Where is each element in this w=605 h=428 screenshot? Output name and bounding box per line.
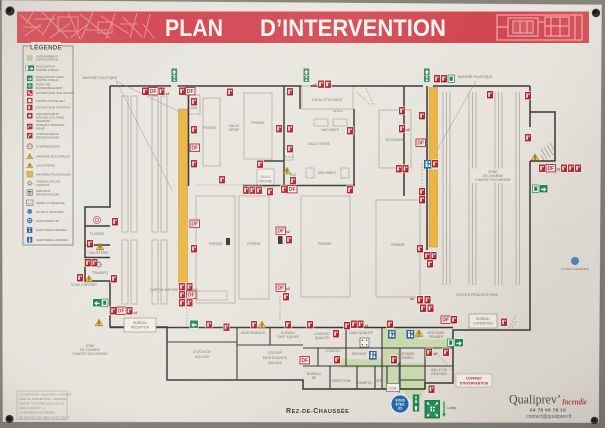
svg-text:GRISE: GRISE <box>229 128 239 132</box>
svg-text:A 20M: A 20M <box>447 406 456 410</box>
svg-text:ARRÊT D’URGENCE: ARRÊT D’URGENCE <box>36 200 65 205</box>
svg-text:ARCHIVE: ARCHIVE <box>352 352 367 356</box>
svg-text:D’INTERVENTION: D’INTERVENTION <box>460 382 489 386</box>
svg-text:PRESSE: PRESSE <box>251 121 265 125</box>
svg-text:COFFRET: COFFRET <box>466 377 483 381</box>
svg-text:PRESSE: PRESSE <box>209 242 223 246</box>
svg-text:MAINTENANCE: MAINTENANCE <box>263 356 287 360</box>
svg-text:MATIERE PLASTIQUE: MATIERE PLASTIQUE <box>458 75 492 79</box>
svg-text:MOULES: MOULES <box>268 361 282 365</box>
svg-text:ICI: ICI <box>398 407 402 411</box>
svg-text:BUREAU: BUREAU <box>133 321 147 325</box>
svg-text:SANITAIRES HOMMES: SANITAIRES HOMMES <box>36 238 68 242</box>
svg-text:LÉGENDE: LÉGENDE <box>30 43 62 52</box>
svg-text:GÉR.: GÉR. <box>375 378 383 383</box>
svg-text:STOCK: STOCK <box>333 109 343 113</box>
svg-text:DÉSENFUMAGE: DÉSENFUMAGE <box>36 134 59 139</box>
svg-text:TRANSFO: TRANSFO <box>92 271 108 275</box>
svg-text:BUREAU: BUREAU <box>476 317 490 321</box>
svg-text:ELEC: ELEC <box>284 155 293 159</box>
svg-text:NF X08-070 & ISO 3864-1 & ISO: NF X08-070 & ISO 3864-1 & ISO 7010-2 <box>19 415 70 419</box>
svg-text:PRESSE: PRESSE <box>318 242 332 246</box>
svg-text:CHAUFFERIE: CHAUFFERIE <box>87 251 108 255</box>
svg-text:CHARIOT ELEVATEUR: CHARIOT ELEVATEUR <box>72 352 108 356</box>
svg-text:ARMÉ: ARMÉ <box>36 125 45 130</box>
svg-text:Qualiprev’: Qualiprev’ <box>509 392 561 407</box>
svg-text:STOCKS PRODUITS FINIS: STOCKS PRODUITS FINIS <box>456 293 498 297</box>
svg-text:FLUIDES: FLUIDES <box>90 232 104 236</box>
svg-text:TENSION: TENSION <box>36 183 49 187</box>
svg-text:MAINTENANCE: MAINTENANCE <box>241 331 265 335</box>
svg-text:SORTIE FINALE: SORTIE FINALE <box>36 68 58 72</box>
svg-text:REZ-DE-CHAUSSÉE: REZ-DE-CHAUSSÉE <box>286 407 349 415</box>
svg-text:STOCKAGE: STOCKAGE <box>193 350 211 354</box>
svg-text:contact@qualiprev.fr: contact@qualiprev.fr <box>526 414 572 420</box>
svg-text:SANITAIRES FEMMES: SANITAIRES FEMMES <box>36 228 67 232</box>
svg-text:CONCEPTEUR : QUALIPREV INCENDI: CONCEPTEUR : QUALIPREV INCENDIE <box>19 392 71 396</box>
svg-text:HOMMES: HOMMES <box>399 356 414 360</box>
svg-text:DIRECTION: DIRECTION <box>332 379 351 383</box>
svg-text:ATELIER: ATELIER <box>268 351 282 355</box>
svg-text:EXTINCTEUR SUR ROUES: EXTINCTEUR SUR ROUES <box>36 91 74 95</box>
svg-text:PRESSE: PRESSE <box>247 242 261 246</box>
svg-text:COM.: COM. <box>389 387 398 391</box>
svg-text:REUNION: REUNION <box>431 372 447 376</box>
svg-text:CONFORME AUX NORMES :: CONFORME AUX NORMES : <box>19 411 57 415</box>
svg-text:SALLE GRISE: SALLE GRISE <box>308 142 330 146</box>
svg-text:EXTINCTEUR PORTATIF: EXTINCTEUR PORTATIF <box>36 106 71 110</box>
svg-text:PRESSE: PRESSE <box>203 126 217 130</box>
svg-text:CHAUFFERIE: CHAUFFERIE <box>36 164 55 168</box>
svg-text:BE: BE <box>312 376 316 380</box>
svg-text:DATE DE CONCEPTION : 10/06/202: DATE DE CONCEPTION : 10/06/2022 <box>19 397 67 401</box>
svg-text:COMPRESSEUR: COMPRESSEUR <box>36 144 60 148</box>
svg-text:04 78 96 78 19: 04 78 96 78 19 <box>530 408 566 414</box>
svg-text:MISE À JOUR N° : 2: MISE À JOUR N° : 2 <box>19 406 45 410</box>
svg-text:LOGISTIC: LOGISTIC <box>325 349 341 353</box>
svg-text:FEMMES: FEMMES <box>429 335 443 339</box>
svg-text:SAS: SAS <box>191 106 198 110</box>
svg-text:SANITAIRES H/F: SANITAIRES H/F <box>36 219 59 223</box>
svg-text:PRESSE: PRESSE <box>391 243 405 247</box>
svg-text:MACHINES: MACHINES <box>321 128 339 132</box>
svg-text:Incendie: Incendie <box>561 398 587 407</box>
svg-text:MACHINES: MACHINES <box>318 171 336 175</box>
svg-text:RÉCEPTION: RÉCEPTION <box>131 325 150 330</box>
svg-text:RASSEMBLEMENT: RASSEMBLEMENT <box>36 86 63 90</box>
svg-text:PLAN N° T3 C07891 26223 101-ND: PLAN N° T3 C07891 26223 101-ND <box>19 402 64 406</box>
svg-text:PROPRE: PROPRE <box>258 180 272 184</box>
svg-text:MATIÈRES PLASTIQUES: MATIÈRES PLASTIQUES <box>36 171 71 176</box>
svg-text:COMPTA.: COMPTA. <box>358 381 373 385</box>
svg-text:POTEAU INCENDIE: POTEAU INCENDIE <box>36 210 64 214</box>
svg-text:QUALITE: QUALITE <box>315 336 329 340</box>
svg-text:D’ÉVACUATION: D’ÉVACUATION <box>36 57 58 62</box>
svg-text:CHARIOT ELEVATEUR: CHARIOT ELEVATEUR <box>475 178 511 182</box>
svg-text:MOULES: MOULES <box>195 355 209 359</box>
svg-text:SOUS COFFRET: SOUS COFFRET <box>71 283 97 287</box>
svg-text:STOCKAGE: STOCKAGE <box>386 138 404 142</box>
svg-text:EXPÉDITION: EXPÉDITION <box>473 321 493 326</box>
svg-text:SALLE: SALLE <box>260 175 270 179</box>
svg-text:AU: AU <box>28 201 32 205</box>
svg-text:ARMOIRE ÉLECTRIQUE: ARMOIRE ÉLECTRIQUE <box>36 154 70 159</box>
svg-text:PORTE COUPE FEU: PORTE COUPE FEU <box>36 99 65 103</box>
svg-text:LABO QUALITE: LABO QUALITE <box>349 331 373 335</box>
svg-text:SORTIE FINALE: SORTIE FINALE <box>36 78 58 82</box>
svg-text:D’INTERVENTION: D’INTERVENTION <box>260 15 446 42</box>
svg-text:LOCAL STOCKAGE: LOCAL STOCKAGE <box>312 98 342 102</box>
svg-text:POTEAU INCENDIE: POTEAU INCENDIE <box>561 267 589 271</box>
svg-text:MATIERE PLASTIQUE: MATIERE PLASTIQUE <box>83 76 117 80</box>
svg-text:INFORMATIQUE: INFORMATIQUE <box>36 192 59 196</box>
svg-text:CHEF EQUIPE: CHEF EQUIPE <box>277 335 300 339</box>
svg-text:PLAN: PLAN <box>165 15 223 42</box>
